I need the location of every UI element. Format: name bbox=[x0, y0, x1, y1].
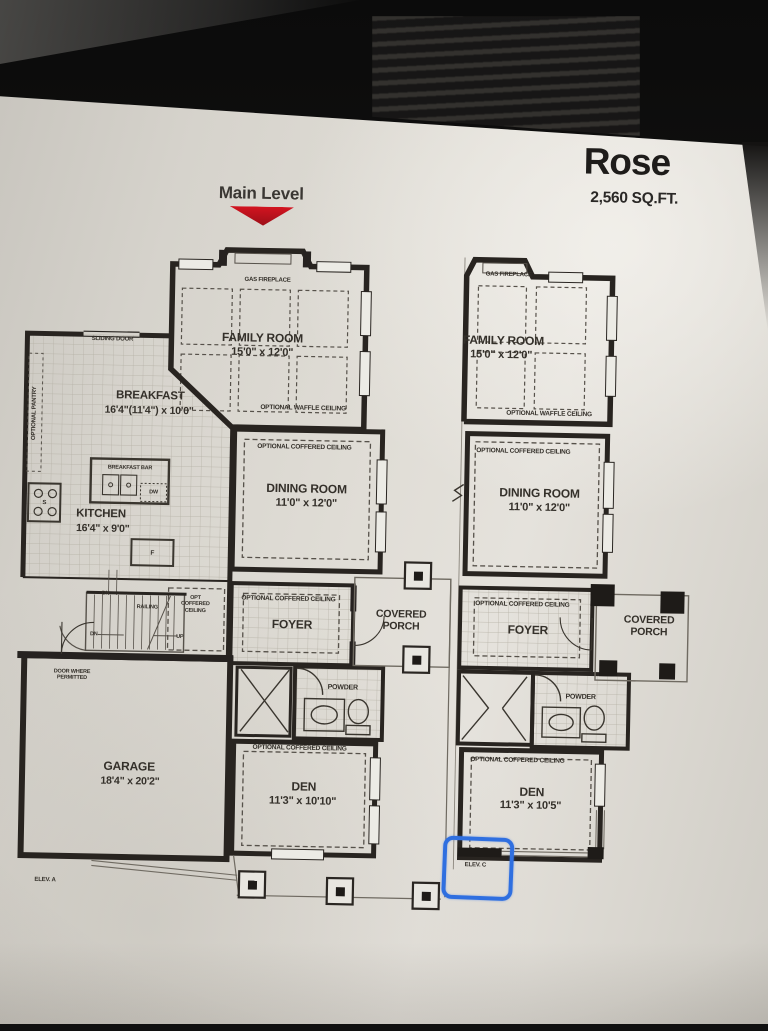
breakfast-name: BREAKFAST bbox=[116, 389, 185, 404]
family-room-dims-left: 15'0" x 12'0" bbox=[231, 346, 293, 360]
den-dims-right: 11'3" x 10'5" bbox=[500, 799, 562, 813]
foyer-name-left: FOYER bbox=[272, 618, 313, 633]
foyer-name-right: FOYER bbox=[508, 623, 549, 638]
dn-top-label: DN bbox=[102, 590, 110, 596]
break-line-symbol bbox=[452, 484, 463, 501]
den-dims-left: 11'3" x 10'10" bbox=[269, 795, 337, 809]
printed-content: Main Level Rose 2,560 SQ.FT. bbox=[0, 0, 768, 1031]
gas-fireplace-label-right: GAS FIREPLACE bbox=[486, 271, 532, 279]
elev-c-highlight-marker bbox=[441, 835, 514, 901]
den-name-right: DEN bbox=[519, 786, 544, 800]
dishwasher-label: DW bbox=[149, 489, 158, 495]
stairs bbox=[59, 569, 185, 652]
family-room-name-right: FAMILY ROOM bbox=[463, 334, 544, 349]
closet-doors-left bbox=[240, 669, 289, 732]
sliding-door-label: SLIDING DOOR bbox=[92, 336, 134, 344]
dining-dims-right: 11'0" x 12'0" bbox=[508, 501, 570, 515]
dn-label: DN bbox=[90, 631, 98, 637]
railing-label: RAILING bbox=[137, 604, 158, 611]
garage-dims: 18'4" x 20'2" bbox=[100, 775, 159, 788]
elevation-a-label: ELEV. A bbox=[34, 877, 55, 884]
kitchen-name: KITCHEN bbox=[76, 507, 126, 521]
covered-porch-label-left: COVERED PORCH bbox=[370, 608, 432, 633]
breakfast-dims: 16'4"(11'4") x 10'0" bbox=[104, 404, 193, 418]
stove-label: S bbox=[42, 500, 46, 507]
breakfast-bar-label: BREAKFAST BAR bbox=[108, 465, 153, 472]
garage-name: GARAGE bbox=[103, 760, 155, 775]
dining-name-left: DINING ROOM bbox=[266, 482, 347, 497]
dining-dims-left: 11'0" x 12'0" bbox=[275, 497, 337, 511]
closet-doors-right bbox=[462, 676, 527, 741]
door-where-permitted-label: DOOR WHERE PERMITTED bbox=[44, 668, 100, 682]
gas-fireplace-label-left: GAS FIREPLACE bbox=[244, 277, 290, 285]
opt-coffered-ceiling-label: OPT COFFERED CEILING bbox=[178, 595, 212, 615]
powder-label-left: POWDER bbox=[328, 684, 358, 693]
family-room-name-left: FAMILY ROOM bbox=[222, 331, 303, 346]
covered-porch-label-right: COVERED PORCH bbox=[617, 613, 681, 638]
kitchen-dims: 16'4" x 9'0" bbox=[76, 522, 130, 535]
dining-name-right: DINING ROOM bbox=[499, 486, 580, 501]
garage-door-swing bbox=[61, 622, 94, 655]
powder-label-right: POWDER bbox=[565, 693, 595, 702]
family-room-dims-right: 15'0" x 12'0" bbox=[470, 348, 532, 362]
fridge-label: F bbox=[150, 550, 154, 558]
den-name-left: DEN bbox=[291, 780, 316, 794]
up-label: UP bbox=[176, 634, 183, 640]
optional-pantry-label: OPTIONAL PANTRY bbox=[31, 386, 39, 440]
photo-of-floor-plan-page: { "header": { "level_label": "Main Level… bbox=[0, 0, 768, 1024]
